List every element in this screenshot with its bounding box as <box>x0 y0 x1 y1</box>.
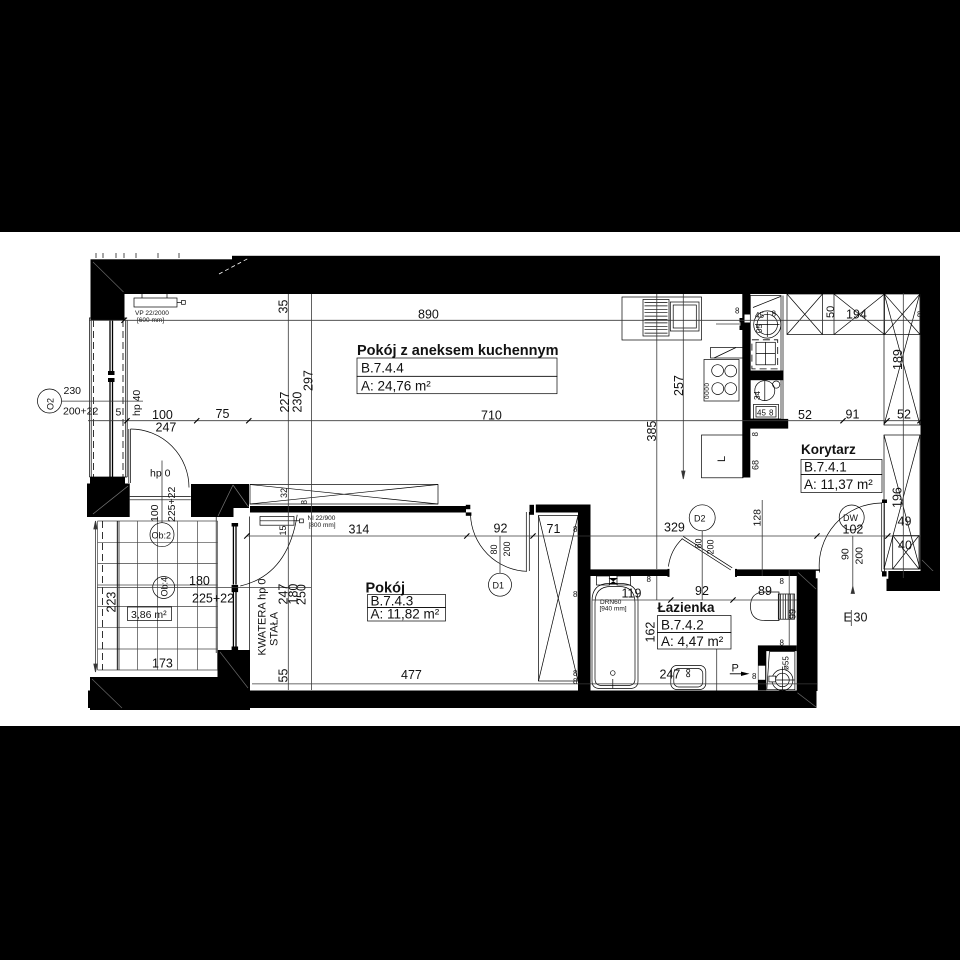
svg-text:45: 45 <box>757 409 766 418</box>
svg-text:8: 8 <box>573 677 578 686</box>
svg-text:8: 8 <box>300 500 309 505</box>
svg-text:225+22: 225+22 <box>192 592 234 606</box>
svg-text:[940 mm]: [940 mm] <box>600 606 627 613</box>
svg-text:3,86 m²: 3,86 m² <box>131 609 167 621</box>
svg-text:STAŁA: STAŁA <box>269 611 281 646</box>
svg-text:8: 8 <box>735 307 740 316</box>
svg-text:890: 890 <box>418 308 439 322</box>
svg-text:Ob:4: Ob:4 <box>160 577 170 597</box>
svg-text:A: 11,37 m²: A: 11,37 m² <box>804 477 873 492</box>
svg-text:99: 99 <box>788 609 798 619</box>
svg-text:477: 477 <box>401 668 422 682</box>
svg-text:329: 329 <box>664 521 685 535</box>
svg-text:VP 22/2000: VP 22/2000 <box>135 310 169 317</box>
svg-text:B.7.4.2: B.7.4.2 <box>661 618 704 633</box>
svg-text:92: 92 <box>494 522 508 536</box>
svg-text:92: 92 <box>695 584 709 598</box>
svg-text:8: 8 <box>573 525 578 534</box>
svg-text:180: 180 <box>189 574 210 588</box>
svg-text:DW: DW <box>843 513 858 523</box>
svg-text:8: 8 <box>780 577 785 586</box>
svg-text:Korytarz: Korytarz <box>801 442 856 457</box>
svg-text:15: 15 <box>278 525 288 535</box>
svg-text:8: 8 <box>752 672 757 681</box>
svg-text:200+22: 200+22 <box>63 406 98 418</box>
svg-text:8: 8 <box>917 310 922 319</box>
svg-text:8: 8 <box>772 310 777 319</box>
svg-text:A: 24,76 m²: A: 24,76 m² <box>361 379 431 394</box>
svg-text:D2: D2 <box>694 514 706 524</box>
svg-text:Ob:2: Ob:2 <box>152 531 172 541</box>
svg-text:314: 314 <box>349 523 370 537</box>
svg-text:8: 8 <box>573 590 578 599</box>
svg-text:A: 11,82 m²: A: 11,82 m² <box>371 607 440 622</box>
svg-text:128: 128 <box>752 509 764 527</box>
svg-text:D1: D1 <box>493 581 505 591</box>
svg-text:250: 250 <box>295 584 309 605</box>
svg-text:32: 32 <box>279 488 289 498</box>
svg-text:52: 52 <box>798 408 812 422</box>
svg-text:8: 8 <box>780 638 785 647</box>
svg-text:80: 80 <box>694 538 704 548</box>
svg-text:8: 8 <box>751 432 760 437</box>
svg-text:O2: O2 <box>46 398 56 410</box>
svg-text:KWATERA hp 0: KWATERA hp 0 <box>257 578 269 655</box>
svg-text:80: 80 <box>489 544 499 554</box>
svg-text:[800 mm]: [800 mm] <box>309 522 336 529</box>
svg-text:257: 257 <box>672 375 686 396</box>
svg-text:hp 40: hp 40 <box>131 390 143 416</box>
svg-text:200: 200 <box>854 547 866 565</box>
svg-text:A: 4,47 m²: A: 4,47 m² <box>661 634 724 649</box>
svg-text:55: 55 <box>277 669 291 683</box>
svg-text:05: 05 <box>755 324 764 333</box>
svg-text:Łazienka: Łazienka <box>658 600 716 615</box>
svg-text:50: 50 <box>825 306 837 318</box>
svg-text:189: 189 <box>891 349 905 370</box>
svg-text:30: 30 <box>854 611 868 625</box>
svg-text:L: L <box>716 456 728 462</box>
svg-text:B.7.4.1: B.7.4.1 <box>804 460 847 475</box>
svg-text:230: 230 <box>64 385 82 397</box>
svg-text:162: 162 <box>644 622 658 643</box>
svg-text:ø55: ø55 <box>782 656 791 670</box>
svg-text:0000: 0000 <box>704 383 711 399</box>
svg-text:Pokój z aneksem kuchennym: Pokój z aneksem kuchennym <box>357 343 558 359</box>
svg-text:119: 119 <box>622 587 642 601</box>
svg-text:71: 71 <box>547 522 561 536</box>
svg-text:E: E <box>844 611 852 625</box>
svg-text:75: 75 <box>216 407 230 421</box>
svg-text:49: 49 <box>898 515 912 529</box>
svg-text:5: 5 <box>116 407 122 419</box>
svg-text:89: 89 <box>758 584 772 598</box>
svg-text:223: 223 <box>105 592 119 613</box>
svg-text:225+22: 225+22 <box>166 487 178 522</box>
svg-text:200: 200 <box>706 539 716 554</box>
svg-text:200: 200 <box>502 541 512 556</box>
svg-text:710: 710 <box>481 409 502 423</box>
svg-text:hp 0: hp 0 <box>150 468 171 480</box>
svg-text:297: 297 <box>302 370 316 391</box>
svg-text:40: 40 <box>898 539 912 553</box>
svg-text:45: 45 <box>755 311 764 320</box>
svg-text:247: 247 <box>660 668 681 682</box>
svg-text:52: 52 <box>897 407 911 421</box>
svg-text:194: 194 <box>846 308 867 322</box>
svg-text:8: 8 <box>647 575 652 584</box>
svg-text:196: 196 <box>891 487 905 508</box>
svg-text:173: 173 <box>152 657 173 671</box>
svg-text:35: 35 <box>277 300 291 314</box>
svg-text:B.7.4.4: B.7.4.4 <box>361 361 404 376</box>
svg-text:90: 90 <box>840 548 852 560</box>
svg-text:100: 100 <box>149 504 161 522</box>
svg-text:8: 8 <box>769 409 774 418</box>
svg-text:34: 34 <box>753 391 762 400</box>
svg-text:68: 68 <box>751 460 761 470</box>
svg-text:P: P <box>732 663 739 675</box>
svg-text:385: 385 <box>645 421 659 442</box>
svg-text:91: 91 <box>846 407 860 421</box>
svg-text:230: 230 <box>291 392 305 413</box>
svg-text:247: 247 <box>156 421 177 435</box>
svg-text:102: 102 <box>843 523 864 537</box>
